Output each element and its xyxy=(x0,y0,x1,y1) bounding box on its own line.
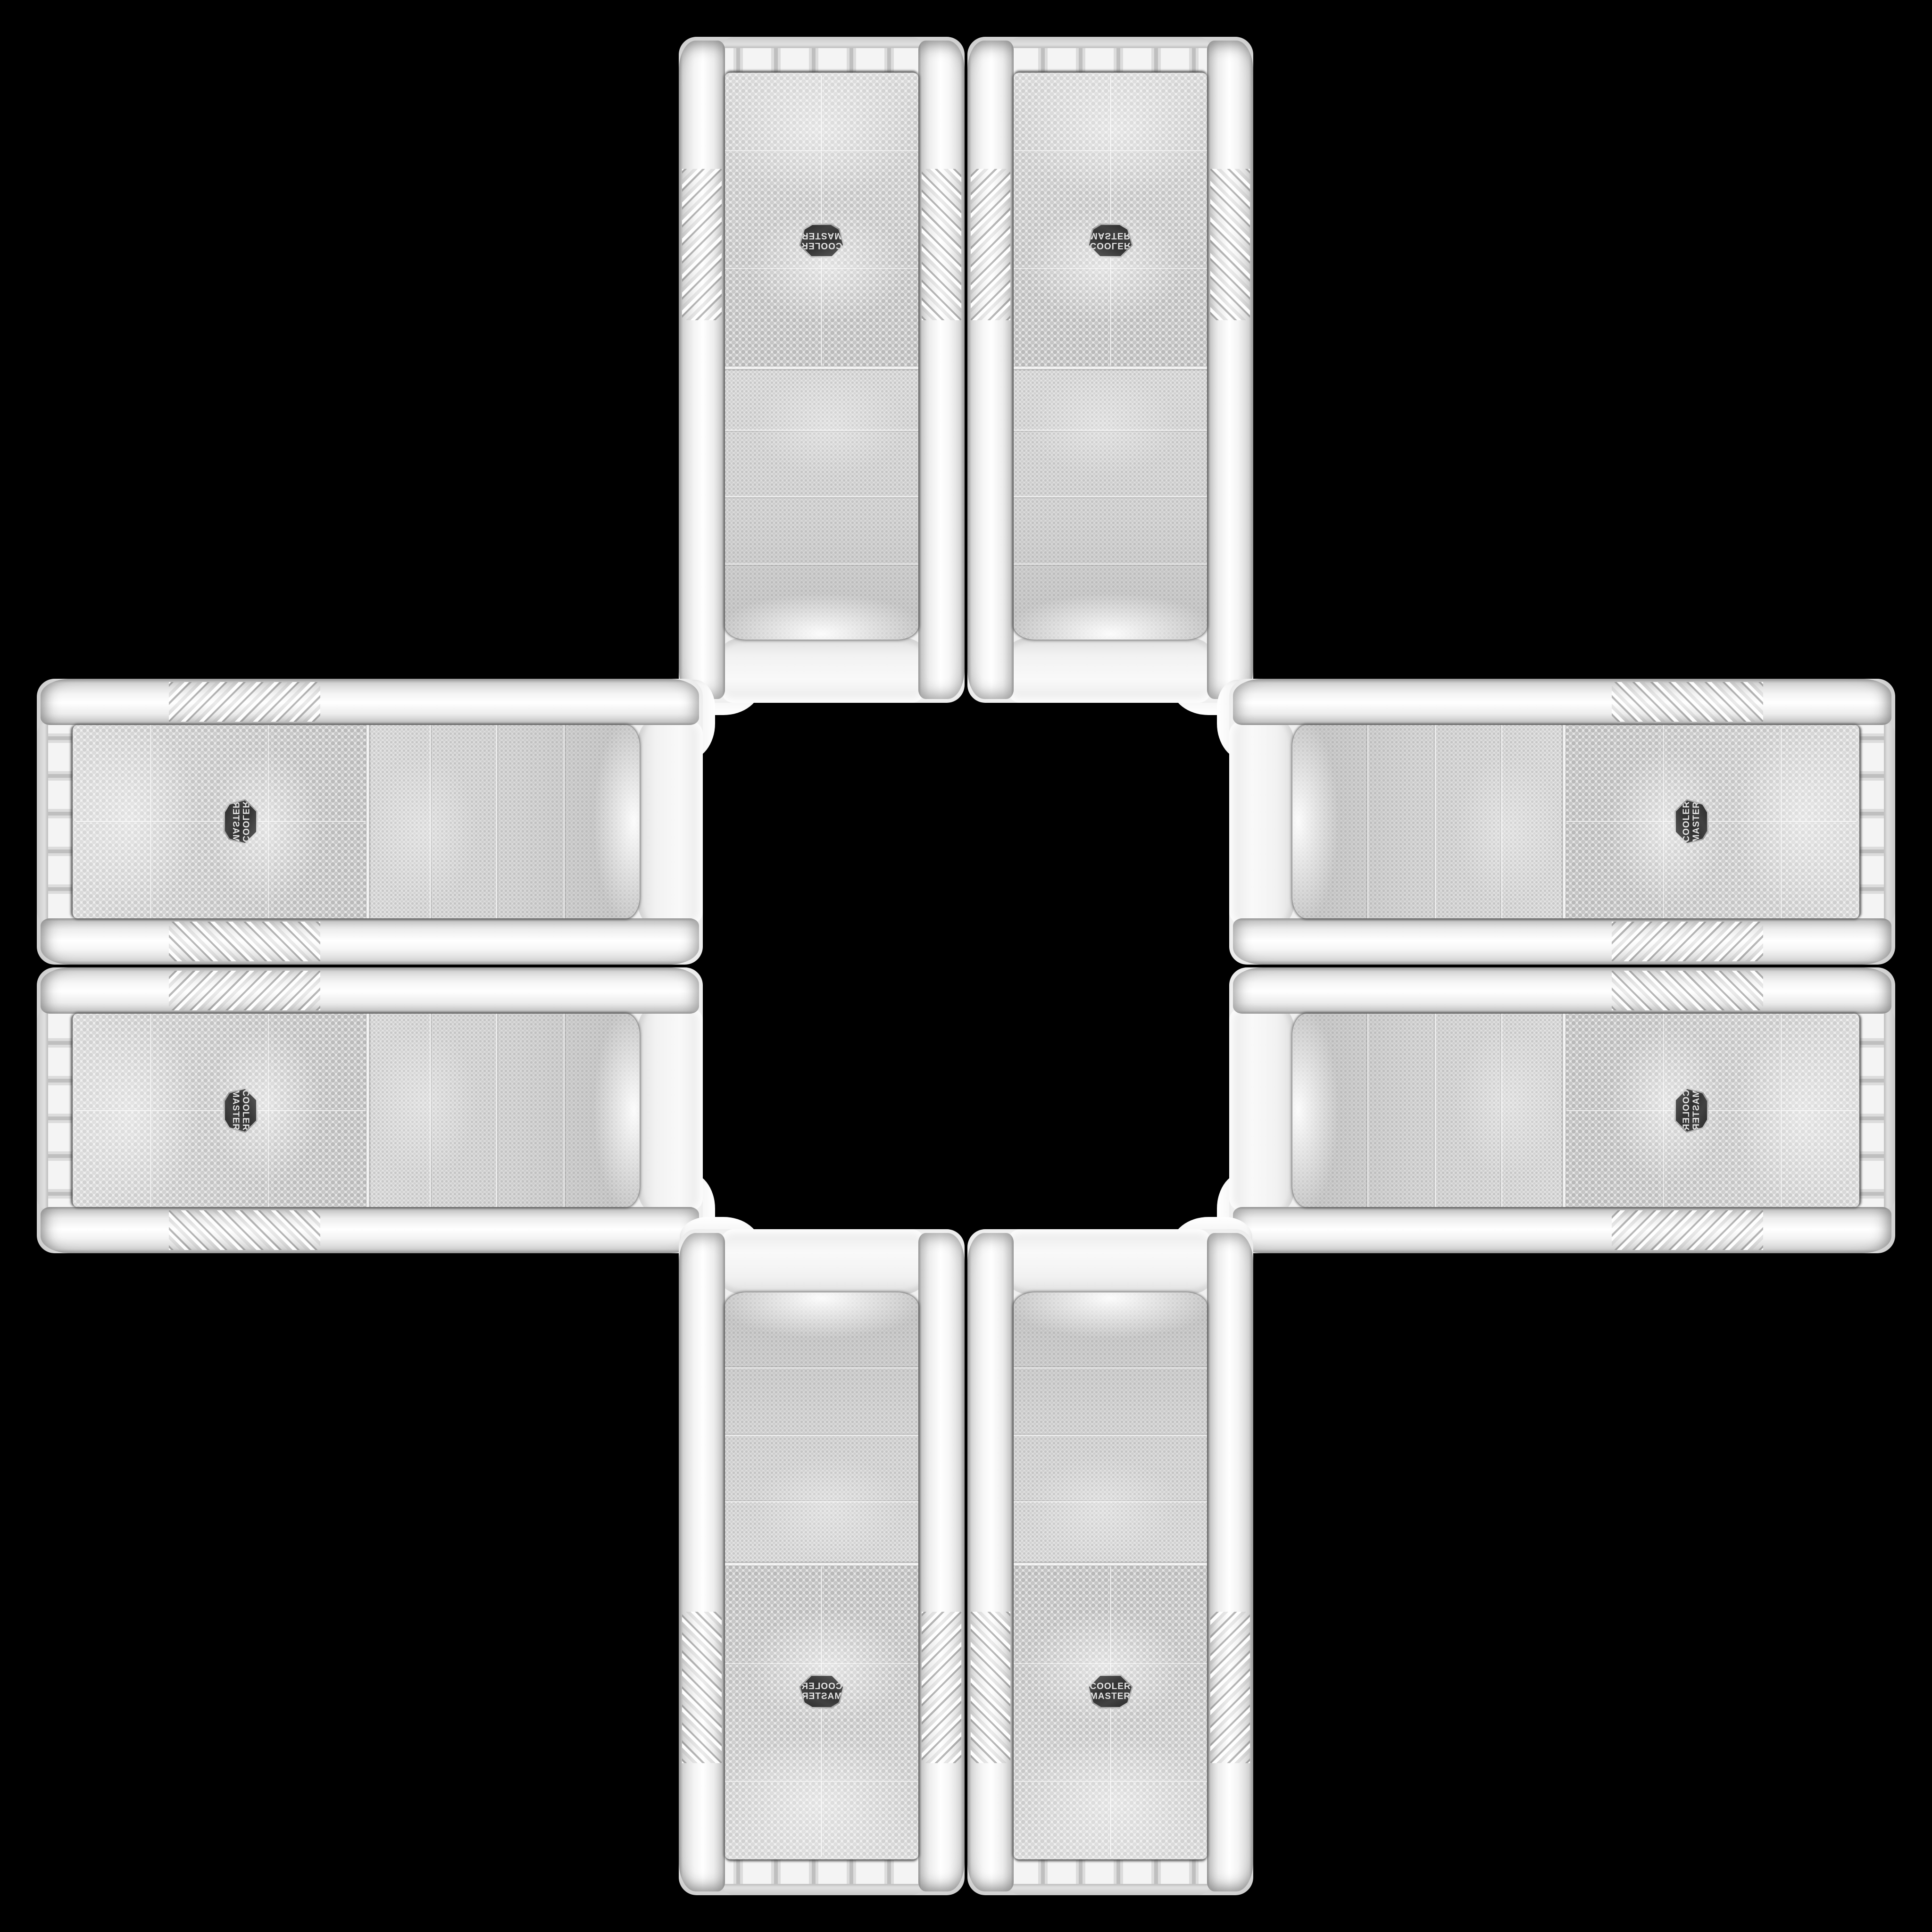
side-rail-left xyxy=(967,1233,1014,1891)
fan-frame-horizontal-seam xyxy=(1014,268,1207,270)
top-cap xyxy=(1229,1008,1295,1211)
side-rail-right xyxy=(679,41,725,699)
drive-bay-divider xyxy=(496,725,498,918)
fan-frame-horizontal-seam xyxy=(1014,1662,1207,1664)
drive-bay-divider xyxy=(1434,725,1436,918)
pc-case-top-left: COOLER MASTER xyxy=(679,37,965,703)
fan-frame-horizontal-seam xyxy=(150,1014,152,1207)
brand-line-2: MASTER xyxy=(801,1691,842,1701)
pc-case-left-bottom: COOLER MASTER xyxy=(37,967,703,1253)
fan-frame-horizontal-seam xyxy=(1780,1014,1782,1207)
brand-line-1: COOLER xyxy=(1090,241,1131,250)
drive-bay-divider xyxy=(1500,1014,1503,1207)
drive-bay-mesh xyxy=(1292,725,1564,918)
grip-ribs-icon xyxy=(1210,1612,1250,1763)
bottom-cap xyxy=(1856,1008,1895,1211)
side-rail-left xyxy=(918,1233,965,1891)
bottom-cap-tabs xyxy=(1010,48,1209,75)
drive-bay-divider xyxy=(1014,1500,1207,1503)
mesh-mid-divider xyxy=(366,725,370,918)
grip-ribs-icon xyxy=(1612,682,1763,722)
side-rail-right xyxy=(41,679,699,725)
pc-case-right-bottom: COOLER MASTER xyxy=(1229,967,1895,1253)
fan-frame-horizontal-seam xyxy=(1662,1014,1664,1207)
bottom-cap xyxy=(37,721,76,924)
cooler-master-logo-icon: COOLER MASTER xyxy=(800,225,843,256)
drive-bay-divider xyxy=(725,1366,918,1369)
drive-bay-divider xyxy=(429,1014,432,1207)
top-cap xyxy=(1008,1229,1211,1295)
mesh-front-panel: COOLER MASTER xyxy=(1014,73,1207,640)
bottom-cap-tabs xyxy=(723,1857,922,1884)
cooler-master-logo-icon: COOLER MASTER xyxy=(1676,800,1707,843)
grip-ribs-icon xyxy=(169,1210,320,1250)
drive-bay-divider xyxy=(1500,725,1503,918)
fan-frame-vertical-seam xyxy=(1566,820,1857,823)
brand-line-1: COOLER xyxy=(801,241,842,250)
top-cap xyxy=(1229,721,1295,924)
bottom-cap-tabs xyxy=(1010,1857,1209,1884)
drive-bay-divider xyxy=(725,1434,918,1436)
fan-frame-vertical-seam xyxy=(1109,75,1112,366)
bottom-cap xyxy=(1008,37,1211,76)
side-rail-left xyxy=(1233,967,1891,1014)
bottom-cap-tabs xyxy=(1857,1010,1884,1209)
mesh-front-panel: COOLER MASTER xyxy=(1292,1014,1859,1207)
mesh-front-panel: COOLER MASTER xyxy=(73,725,640,918)
grip-ribs-icon xyxy=(1210,169,1250,320)
grip-ribs-icon xyxy=(922,1612,961,1763)
side-rail-right xyxy=(1233,679,1891,725)
drive-bay-mesh xyxy=(1014,368,1207,640)
side-rail-left xyxy=(918,41,965,699)
fan-frame-vertical-seam xyxy=(1566,1109,1857,1112)
mesh-mid-divider xyxy=(366,1014,370,1207)
bottom-cap-tabs xyxy=(1857,723,1884,922)
top-cap xyxy=(721,1229,924,1295)
fan-frame-horizontal-seam xyxy=(1014,1780,1207,1782)
mesh-mid-divider xyxy=(1562,725,1566,918)
side-rail-right xyxy=(679,1233,725,1891)
drive-bay-divider xyxy=(1014,496,1207,498)
fan-frame-vertical-seam xyxy=(75,1109,366,1112)
brand-line-1: COOLER xyxy=(1090,1682,1131,1691)
drive-bay-divider xyxy=(725,1500,918,1503)
top-cap xyxy=(1008,637,1211,703)
fan-frame-horizontal-seam xyxy=(725,1780,918,1782)
brand-line-1: COOLER xyxy=(241,801,250,842)
grip-ribs-icon xyxy=(169,971,320,1010)
pc-case-bottom-left: COOLER MASTER xyxy=(679,1229,965,1895)
brand-line-2: MASTER xyxy=(1691,801,1701,842)
side-rail-left xyxy=(1233,918,1891,965)
fan-frame-vertical-seam xyxy=(75,820,366,823)
fan-frame-vertical-seam xyxy=(820,75,823,366)
brand-line-2: MASTER xyxy=(231,1090,241,1131)
drive-bay-divider xyxy=(1014,429,1207,432)
fan-frame-horizontal-seam xyxy=(150,725,152,918)
mesh-front-panel: COOLER MASTER xyxy=(725,1292,918,1859)
bottom-cap-tabs xyxy=(723,48,922,75)
drive-bay-divider xyxy=(563,1014,566,1207)
drive-bay-divider xyxy=(1434,1014,1436,1207)
drive-bay-divider xyxy=(725,563,918,566)
top-cap xyxy=(637,1008,703,1211)
cooler-master-logo-icon: COOLER MASTER xyxy=(800,1676,843,1707)
bottom-cap-tabs xyxy=(48,1010,75,1209)
side-rail-left xyxy=(967,41,1014,699)
brand-line-2: MASTER xyxy=(801,231,842,241)
top-cap xyxy=(721,637,924,703)
brand-line-2: MASTER xyxy=(231,801,241,842)
cooler-master-logo-icon: COOLER MASTER xyxy=(225,1089,256,1132)
grip-ribs-icon xyxy=(682,169,722,320)
drive-bay-mesh xyxy=(368,1014,640,1207)
brand-line-1: COOLER xyxy=(241,1090,250,1131)
drive-bay-divider xyxy=(429,725,432,918)
drive-bay-divider xyxy=(1366,725,1369,918)
fan-frame-horizontal-seam xyxy=(725,150,918,152)
pc-case-top-right: COOLER MASTER xyxy=(967,37,1253,703)
drive-bay-mesh xyxy=(368,725,640,918)
mesh-front-panel: COOLER MASTER xyxy=(725,73,918,640)
drive-bay-mesh xyxy=(725,368,918,640)
grip-ribs-icon xyxy=(1612,1210,1763,1250)
fan-frame-horizontal-seam xyxy=(268,1014,270,1207)
drive-bay-divider xyxy=(1014,1434,1207,1436)
side-rail-right xyxy=(1207,41,1253,699)
grip-ribs-icon xyxy=(971,1612,1010,1763)
cooler-master-logo-icon: COOLER MASTER xyxy=(1089,225,1132,256)
brand-line-2: MASTER xyxy=(1090,231,1131,241)
side-rail-left xyxy=(41,918,699,965)
drive-bay-divider xyxy=(725,496,918,498)
top-cap xyxy=(637,721,703,924)
fan-frame-horizontal-seam xyxy=(1662,725,1664,918)
mesh-mid-divider xyxy=(1014,1562,1207,1566)
brand-line-1: COOLER xyxy=(801,1682,842,1691)
mesh-front-panel: COOLER MASTER xyxy=(73,1014,640,1207)
mesh-mid-divider xyxy=(1562,1014,1566,1207)
drive-bay-divider xyxy=(1366,1014,1369,1207)
mesh-mid-divider xyxy=(725,366,918,370)
fan-frame-vertical-seam xyxy=(1109,1566,1112,1857)
grip-ribs-icon xyxy=(922,169,961,320)
bottom-cap xyxy=(721,1856,924,1895)
bottom-cap xyxy=(721,37,924,76)
grip-ribs-icon xyxy=(169,682,320,722)
side-rail-right xyxy=(41,1207,699,1253)
brand-line-1: COOLER xyxy=(1682,1090,1691,1131)
mesh-mid-divider xyxy=(725,1562,918,1566)
grip-ribs-icon xyxy=(169,922,320,961)
cooler-master-logo-icon: COOLER MASTER xyxy=(1089,1676,1132,1707)
pc-case-right-top: COOLER MASTER xyxy=(1229,679,1895,965)
case-collage: COOLER MASTER xyxy=(0,0,1932,1932)
fan-frame-horizontal-seam xyxy=(725,268,918,270)
fan-frame-horizontal-seam xyxy=(1780,725,1782,918)
fan-frame-horizontal-seam xyxy=(1014,150,1207,152)
drive-bay-divider xyxy=(1014,1366,1207,1369)
drive-bay-mesh xyxy=(725,1292,918,1564)
mesh-mid-divider xyxy=(1014,366,1207,370)
bottom-cap-tabs xyxy=(48,723,75,922)
grip-ribs-icon xyxy=(1612,971,1763,1010)
cooler-master-logo-icon: COOLER MASTER xyxy=(1676,1089,1707,1132)
drive-bay-divider xyxy=(563,725,566,918)
pc-case-left-top: COOLER MASTER xyxy=(37,679,703,965)
grip-ribs-icon xyxy=(682,1612,722,1763)
fan-frame-horizontal-seam xyxy=(725,1662,918,1664)
grip-ribs-icon xyxy=(1612,922,1763,961)
pc-case-bottom-right: COOLER MASTER xyxy=(967,1229,1253,1895)
side-rail-right xyxy=(1233,1207,1891,1253)
side-rail-right xyxy=(1207,1233,1253,1891)
drive-bay-divider xyxy=(725,429,918,432)
cooler-master-logo-icon: COOLER MASTER xyxy=(225,800,256,843)
bottom-cap xyxy=(37,1008,76,1211)
brand-line-2: MASTER xyxy=(1090,1691,1131,1701)
side-rail-left xyxy=(41,967,699,1014)
drive-bay-divider xyxy=(1014,563,1207,566)
fan-frame-horizontal-seam xyxy=(268,725,270,918)
drive-bay-divider xyxy=(496,1014,498,1207)
mesh-front-panel: COOLER MASTER xyxy=(1292,725,1859,918)
mesh-front-panel: COOLER MASTER xyxy=(1014,1292,1207,1859)
fan-frame-vertical-seam xyxy=(820,1566,823,1857)
bottom-cap xyxy=(1008,1856,1211,1895)
drive-bay-mesh xyxy=(1014,1292,1207,1564)
grip-ribs-icon xyxy=(971,169,1010,320)
bottom-cap xyxy=(1856,721,1895,924)
brand-line-2: MASTER xyxy=(1691,1090,1701,1131)
brand-line-1: COOLER xyxy=(1682,801,1691,842)
drive-bay-mesh xyxy=(1292,1014,1564,1207)
